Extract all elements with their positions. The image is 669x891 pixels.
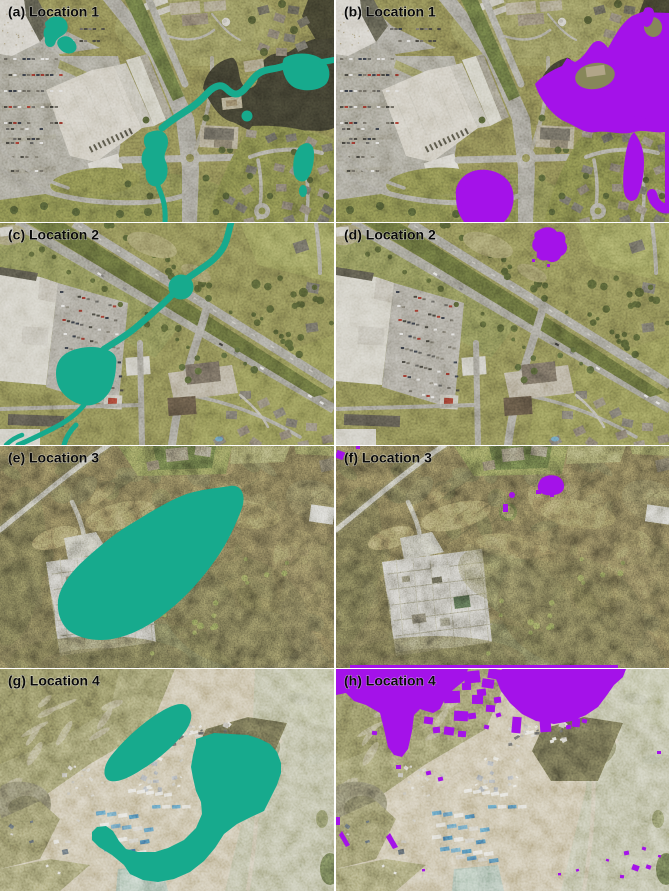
svg-text:(b) Location 1: (b) Location 1	[344, 4, 436, 20]
svg-text:(d) Location 2: (d) Location 2	[344, 227, 436, 243]
svg-text:(e) Location 3: (e) Location 3	[8, 450, 99, 466]
svg-text:(g) Location 4: (g) Location 4	[8, 673, 100, 689]
svg-text:(f) Location 3: (f) Location 3	[344, 450, 432, 466]
svg-text:(h) Location 4: (h) Location 4	[344, 673, 436, 689]
svg-text:(a) Location 1: (a) Location 1	[8, 4, 99, 20]
svg-text:(c) Location 2: (c) Location 2	[8, 227, 99, 243]
